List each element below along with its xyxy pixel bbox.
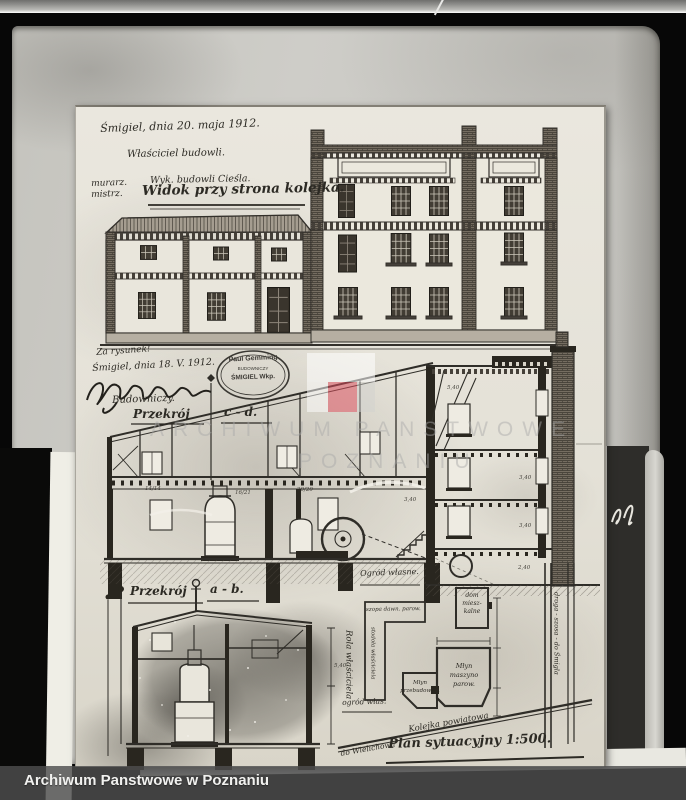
watermark-logo-red-square — [328, 382, 357, 412]
dim-mark: 5,40 — [447, 386, 459, 392]
plan-road-label: droga - szosa - do Śmigla — [553, 592, 560, 675]
dim-mark: 2,40 — [518, 566, 530, 572]
dim-mark: 3,40 — [519, 524, 531, 530]
watermark-text-line2: POZNANIU — [298, 450, 479, 474]
plan-mill2-line2: przebudowan. — [400, 689, 440, 695]
footer-overlay-bar: Archiwum Panstwowe w Poznaniu — [0, 766, 686, 800]
section-ab — [106, 580, 336, 771]
dim-mark: 16/21 — [235, 491, 251, 497]
plan-garden-bottom: ogród włas. — [342, 697, 386, 706]
plan-mill-line1: Młyn — [439, 663, 489, 670]
section-ab-label: Przekrój — [130, 585, 187, 597]
plan-barn-label: stodoła właściciela — [369, 627, 375, 680]
dim-mark: 3,40 — [404, 498, 416, 504]
watermark-logo-panel — [307, 382, 328, 412]
plan-mill-line2: maszyno — [439, 672, 489, 679]
archive-name-label: Archiwum Panstwowe w Poznaniu — [24, 772, 269, 789]
section-ab-id: a - b. — [210, 583, 244, 595]
plan-house-line1: dom — [456, 593, 488, 599]
header-margin-2: mistrz. — [91, 190, 123, 200]
dim-mark: 14/14 — [145, 487, 161, 493]
dim-mark: 20/20 — [297, 488, 313, 494]
plan-mill-line3: parow. — [439, 681, 489, 688]
watermark-logo-panel — [357, 382, 375, 412]
plan-house-line2: miesz- — [456, 601, 488, 607]
dim-mark: 3,40 — [519, 476, 531, 482]
section-cd-id: c - d. — [224, 406, 257, 418]
margin-scribble — [612, 506, 632, 525]
header-owner: Właściciel budowli. — [127, 148, 225, 160]
view-title: Widok przy strona kolejka. — [142, 181, 345, 198]
stamp-role: BUDOWNICZY — [222, 367, 284, 372]
watermark-text-line1: ARCHIWUM PANSTWOWE — [150, 418, 574, 442]
dim-mark: 5,40 — [334, 664, 346, 670]
plan-house-line3: kalne — [456, 609, 488, 615]
watermark-logo-panel — [307, 353, 375, 382]
elevation-left-building — [106, 215, 312, 343]
plan-mill2-line1: Młyn — [404, 681, 436, 687]
header-margin-1: murarz. — [91, 179, 127, 189]
plan-shed-label: szopa dawn. parow. — [366, 607, 421, 613]
archival-photo: Śmigiel, dnia 20. maja 1912. Właściciel … — [0, 0, 686, 800]
